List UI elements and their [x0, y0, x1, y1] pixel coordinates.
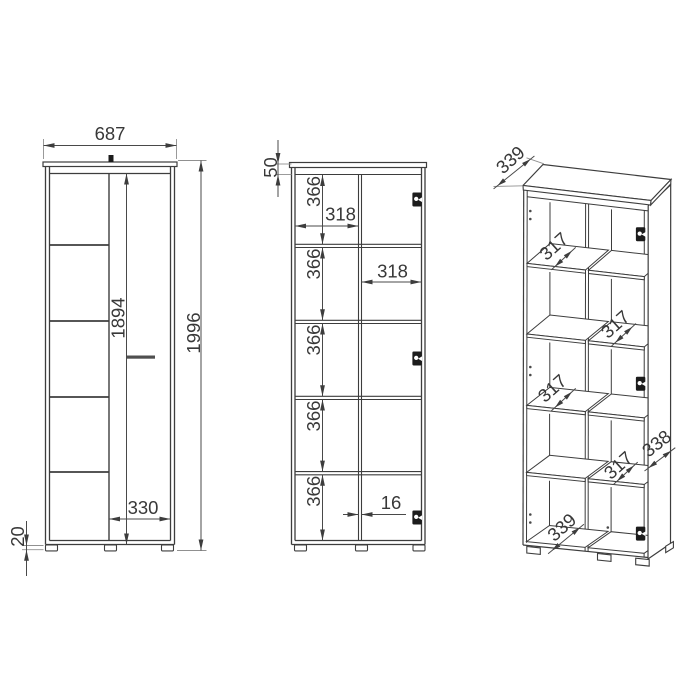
svg-text:50: 50	[260, 157, 281, 178]
svg-text:16: 16	[381, 492, 402, 513]
svg-text:1996: 1996	[183, 312, 204, 353]
svg-text:330: 330	[128, 497, 159, 518]
svg-text:318: 318	[325, 204, 356, 225]
svg-text:366: 366	[303, 176, 324, 207]
svg-text:339: 339	[492, 142, 529, 178]
svg-text:366: 366	[303, 249, 324, 280]
svg-text:366: 366	[303, 476, 324, 507]
svg-text:366: 366	[303, 325, 324, 356]
svg-text:366: 366	[303, 401, 324, 432]
svg-text:20: 20	[7, 526, 28, 547]
svg-text:1894: 1894	[108, 297, 129, 338]
svg-text:687: 687	[95, 123, 126, 144]
svg-text:318: 318	[377, 261, 408, 282]
